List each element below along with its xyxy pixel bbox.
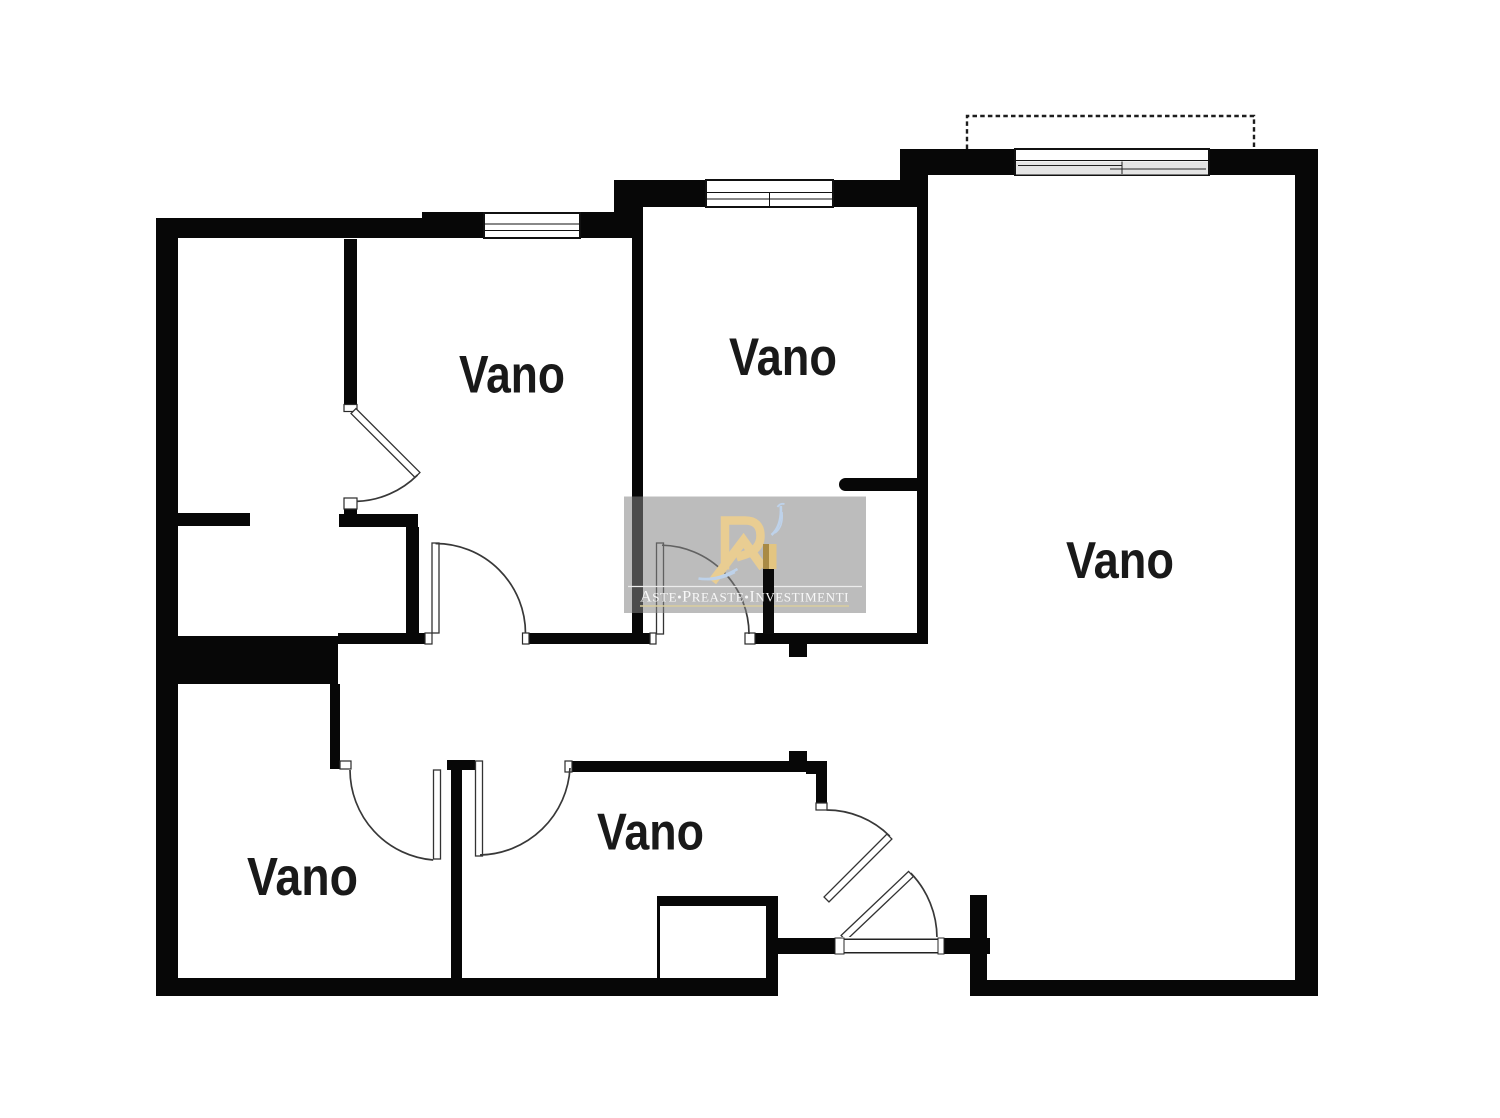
svg-text:Vano: Vano	[247, 847, 358, 907]
svg-text:ASTE•PREASTE•INVESTIMENTI: ASTE•PREASTE•INVESTIMENTI	[640, 589, 849, 606]
svg-text:Vano: Vano	[729, 328, 837, 387]
svg-text:Vano: Vano	[1066, 532, 1174, 590]
svg-text:Vano: Vano	[597, 804, 704, 862]
svg-text:Vano: Vano	[459, 346, 565, 405]
